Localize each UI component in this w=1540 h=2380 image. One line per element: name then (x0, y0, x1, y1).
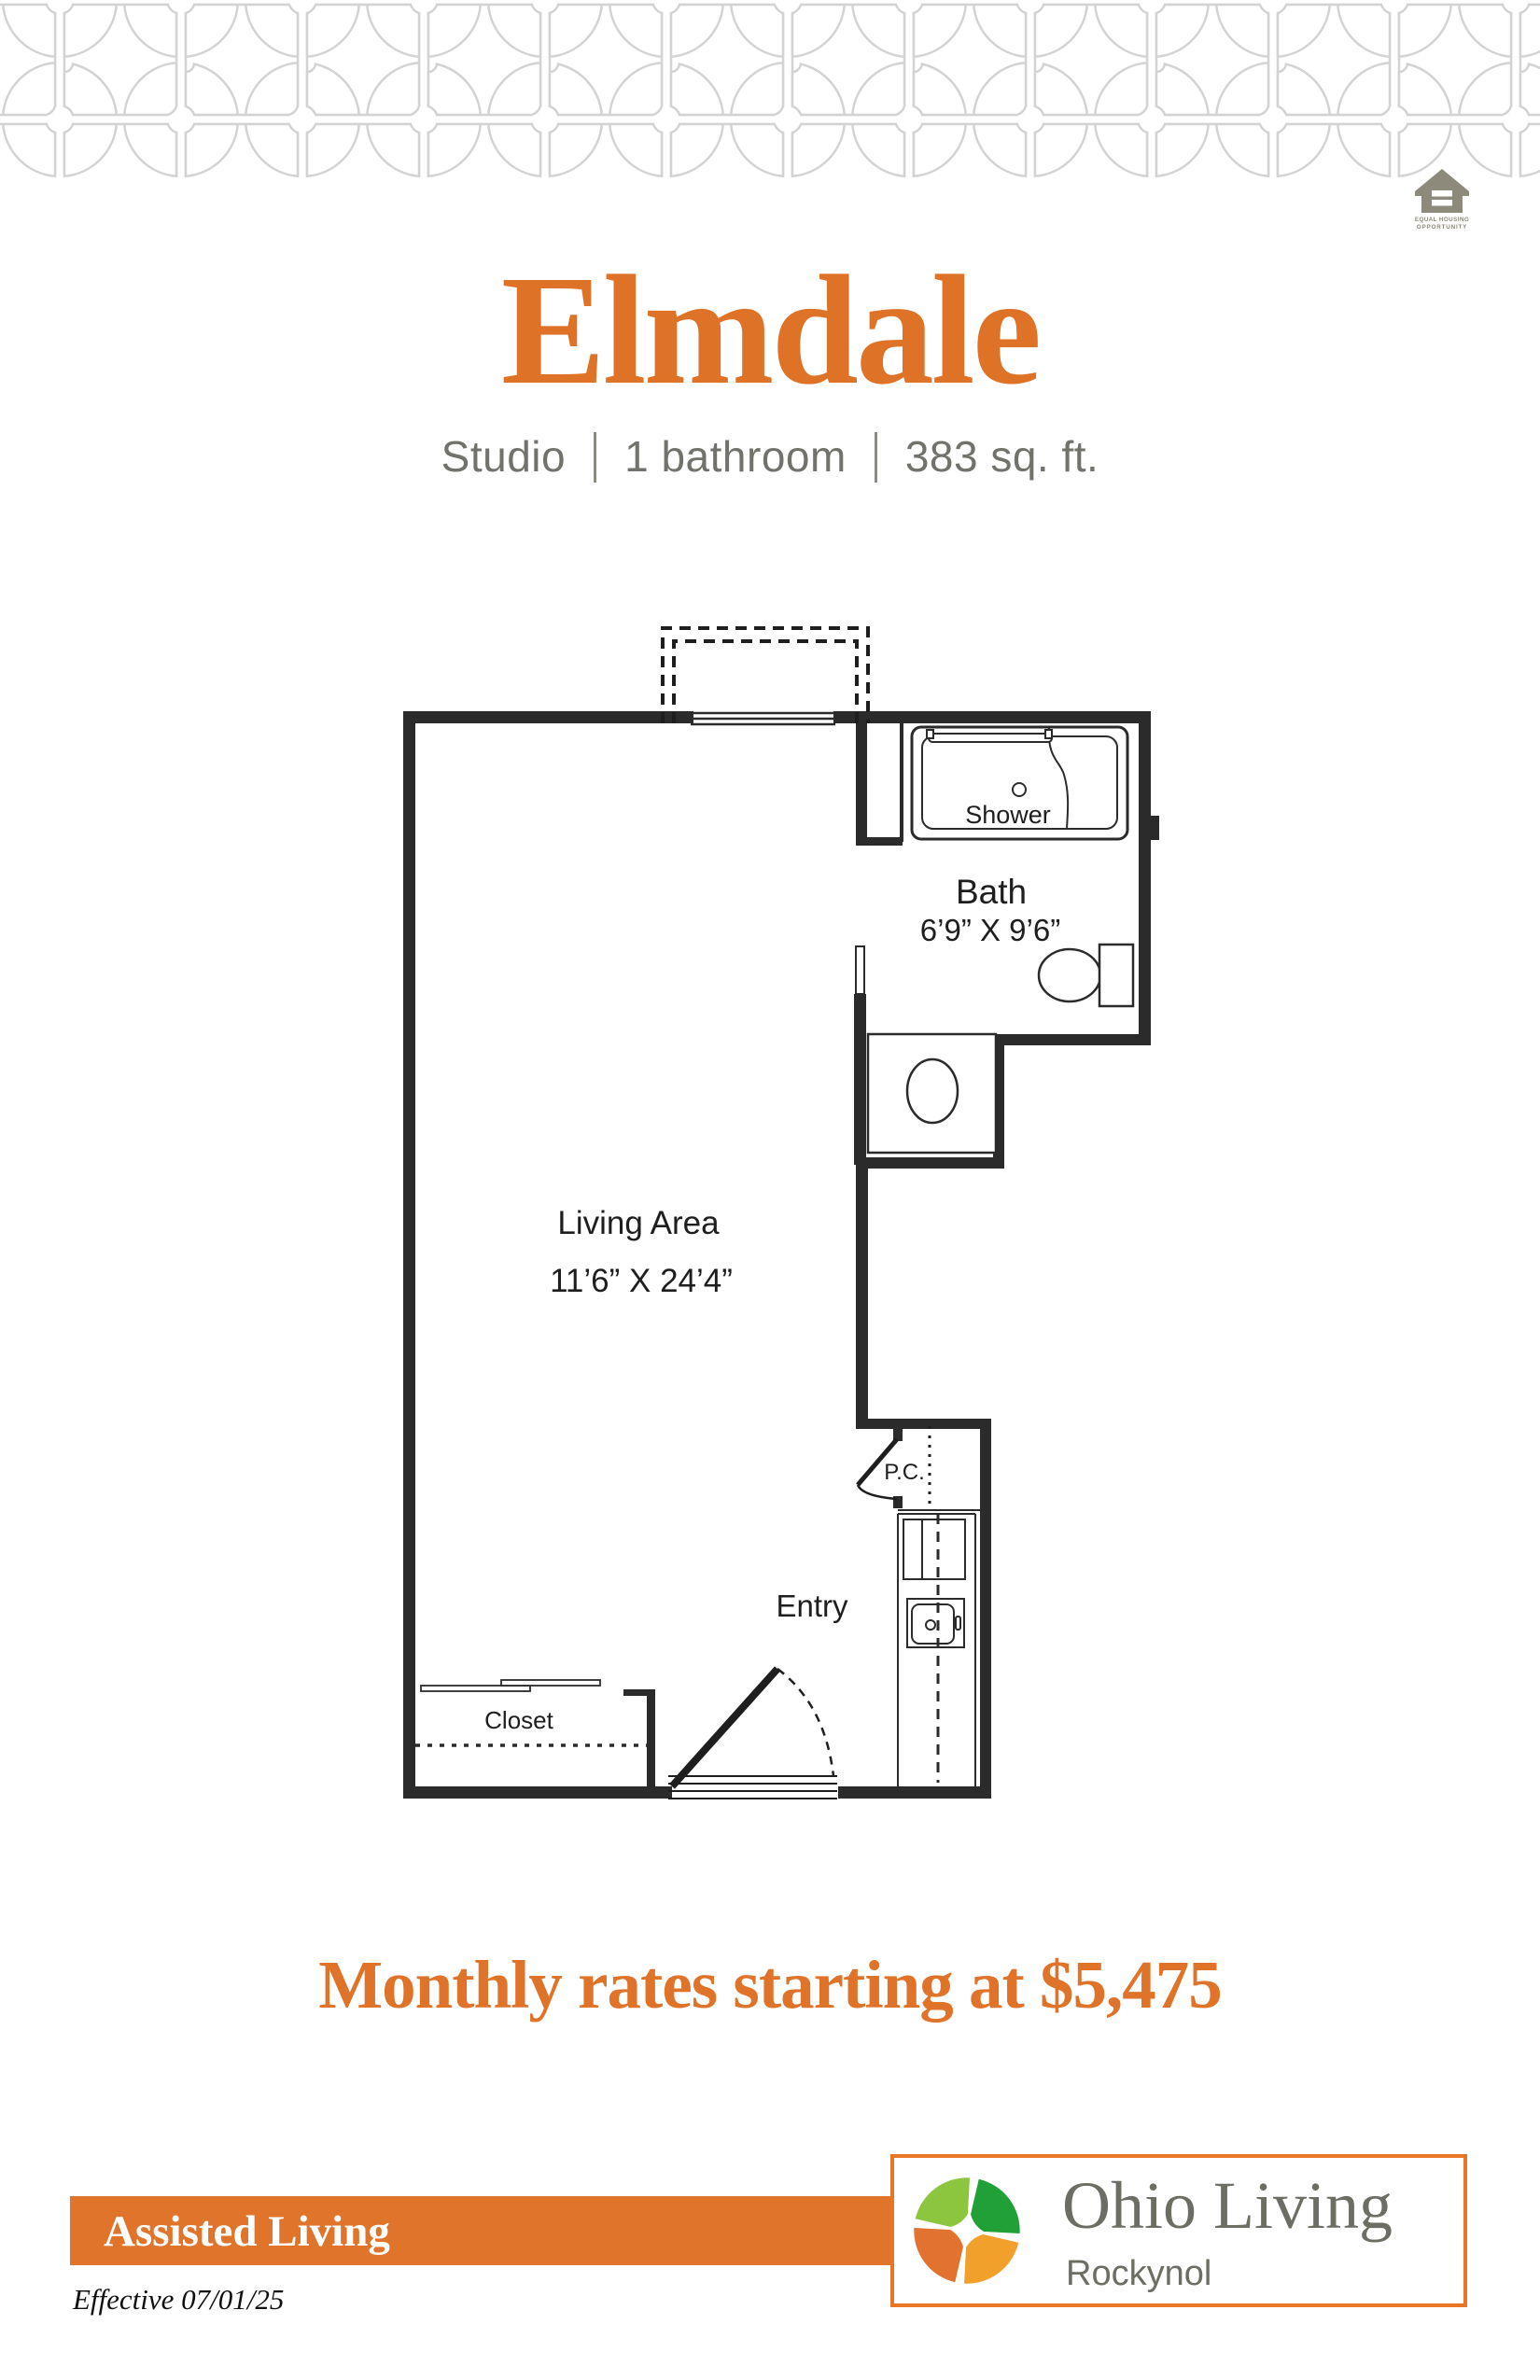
wall-top-right (833, 711, 1151, 723)
brand-name: Ohio Living (1062, 2167, 1393, 2245)
kitchen-sink-basin (912, 1604, 954, 1644)
entry-door-leaf (672, 1669, 777, 1786)
wall-left (403, 711, 415, 1799)
entry-door-swing-arc (777, 1669, 833, 1776)
wall-top-left (403, 711, 693, 723)
closet-wall-right (647, 1689, 655, 1792)
kitchen-sink-faucet (956, 1617, 960, 1630)
label-living-area: Living Area (557, 1205, 720, 1241)
toilet-bowl (1039, 949, 1100, 1001)
label-closet: Closet (484, 1706, 553, 1734)
walls (403, 711, 1159, 1799)
care-level-band: Assisted Living (70, 2196, 938, 2265)
label-living-dims: 11’6” X 24’4” (550, 1263, 733, 1299)
shower-drain (1013, 783, 1026, 796)
toilet-tank (1099, 945, 1133, 1006)
closet-slider-panel-2 (501, 1680, 600, 1686)
wall-shower-bump (1148, 816, 1159, 840)
entry-door (668, 1669, 837, 1799)
effective-date: Effective 07/01/25 (73, 2283, 284, 2317)
shower-seat-curve (1049, 728, 1068, 829)
wall-partition-lower (854, 994, 866, 1165)
grab-bar-end-right (1045, 730, 1052, 738)
wall-pc-top (856, 1419, 991, 1429)
label-bath: Bath (956, 873, 1027, 911)
wall-right (1139, 711, 1151, 1045)
bath-door-jamb (856, 946, 864, 994)
monthly-rate-line: Monthly rates starting at $5,475 (0, 1946, 1540, 2024)
wall-kitchen-right (980, 1419, 991, 1799)
kitchen-sink-drain (926, 1620, 935, 1630)
wall-below-vanity (856, 1157, 1004, 1169)
wall-living-right (856, 1169, 868, 1428)
wall-chase-right-line (900, 723, 903, 842)
label-bath-dims: 6’9” X 9’6” (920, 913, 1060, 947)
label-pc: P.C. (884, 1460, 925, 1485)
wall-bottom-left (403, 1786, 672, 1799)
ohio-living-mark (907, 2171, 1027, 2290)
vanity-sink (907, 1059, 958, 1123)
closet-wall-stub (623, 1689, 647, 1696)
window (691, 713, 835, 724)
closet-slider-panel-1 (421, 1686, 530, 1691)
kitchenette (898, 1510, 991, 1786)
base-cabinet (903, 1519, 965, 1579)
wall-chase-cap (856, 837, 903, 846)
wall-bath-bottom (996, 1034, 1151, 1045)
wall-bottom-right (838, 1786, 991, 1799)
pc-door-arc (858, 1485, 897, 1499)
shower-grab-bar (929, 734, 1052, 742)
grab-bar-end-left (927, 730, 933, 738)
toilet (1039, 945, 1133, 1006)
label-shower: Shower (965, 801, 1051, 829)
label-entry: Entry (776, 1589, 848, 1623)
brand-logo-box: Ohio Living Rockynol (890, 2154, 1467, 2307)
brand-community: Rockynol (1066, 2254, 1211, 2294)
flyer-page: { "colors": { "accent_orange": "#E0732A"… (0, 0, 1540, 2380)
wall-chase-left (856, 723, 867, 845)
vanity (868, 1034, 996, 1153)
dashed-bay (663, 628, 868, 723)
